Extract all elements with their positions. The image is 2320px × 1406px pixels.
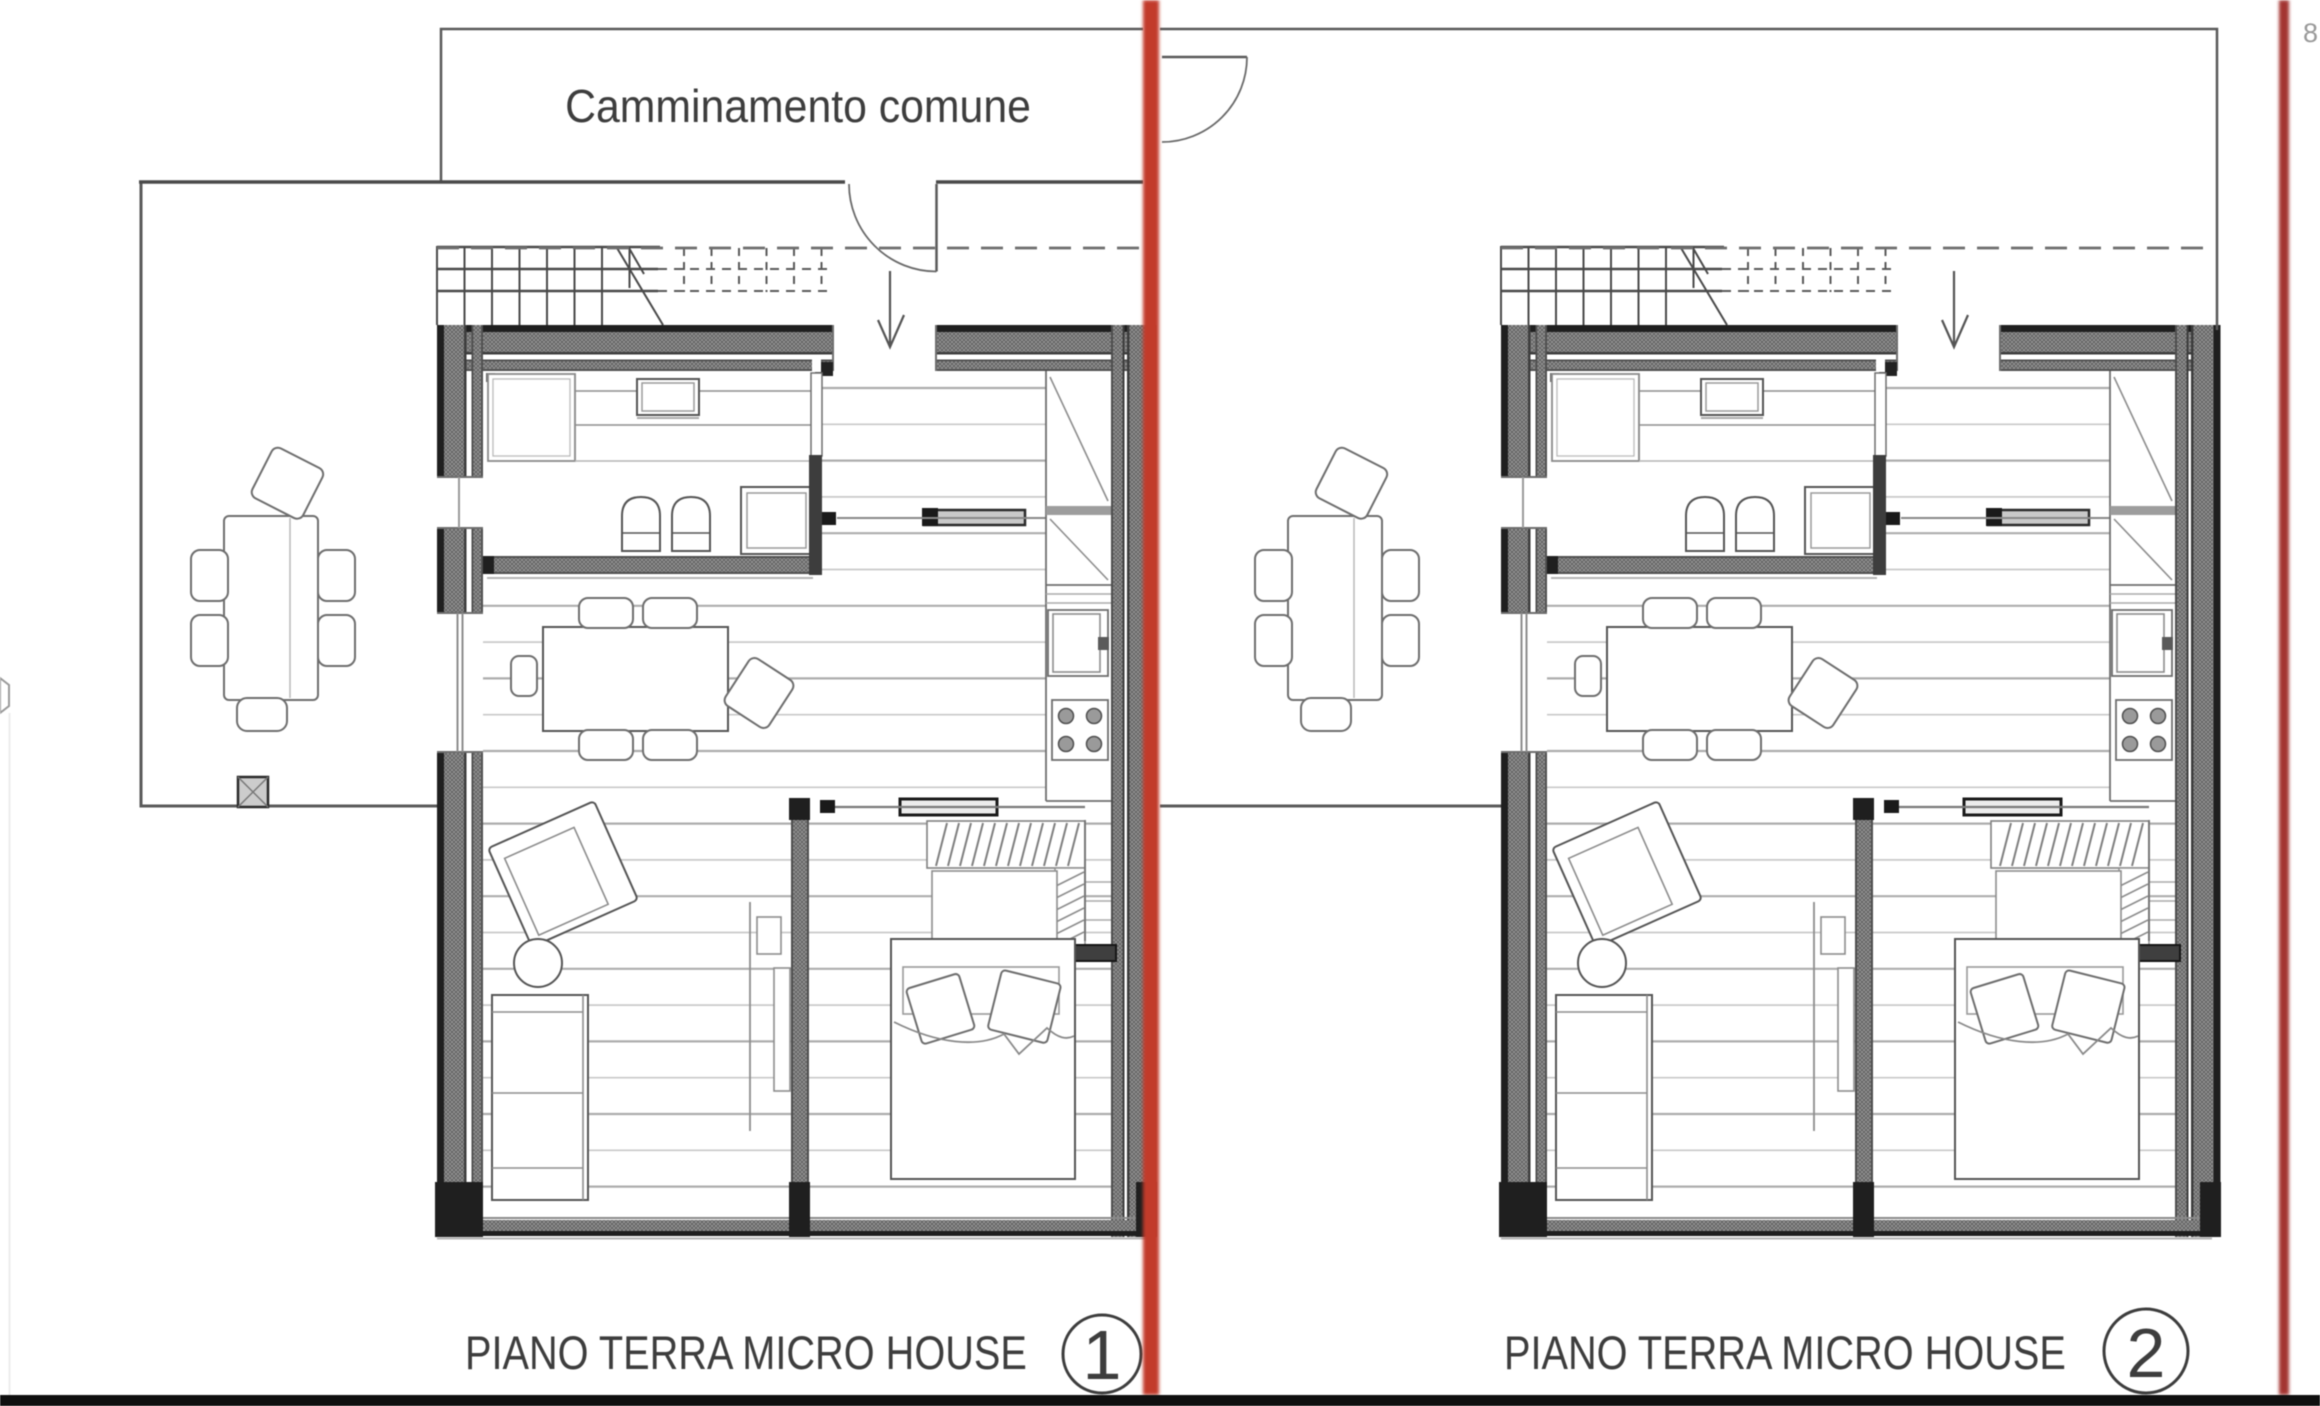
svg-text:8: 8 xyxy=(2303,18,2318,48)
svg-text:Camminamento comune: Camminamento comune xyxy=(565,81,1031,132)
svg-text:2: 2 xyxy=(2127,1314,2166,1392)
svg-text:PIANO TERRA MICRO HOUSE: PIANO TERRA MICRO HOUSE xyxy=(465,1328,1027,1380)
svg-text:PIANO TERRA MICRO HOUSE: PIANO TERRA MICRO HOUSE xyxy=(1504,1328,2066,1380)
svg-text:1: 1 xyxy=(1083,1316,1122,1394)
